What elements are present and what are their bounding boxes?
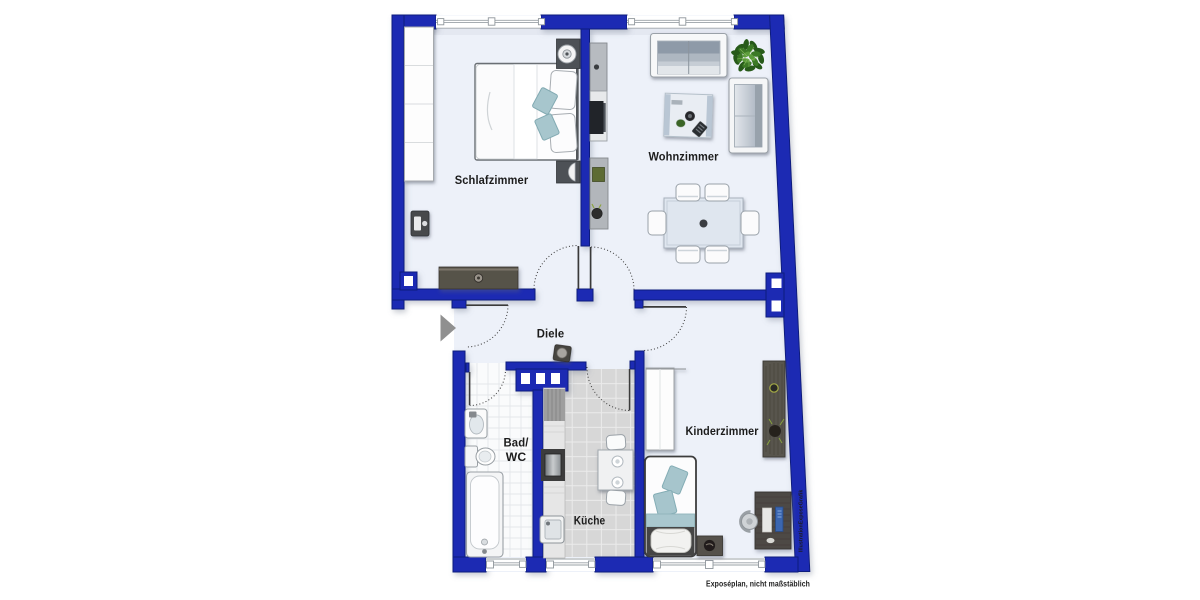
svg-text:Küche: Küche bbox=[574, 515, 606, 527]
svg-text:Bad/: Bad/ bbox=[504, 438, 530, 450]
svg-text:WC: WC bbox=[506, 452, 527, 464]
svg-text:IllustrationExposeGrafik: IllustrationExposeGrafik bbox=[799, 490, 805, 552]
svg-text:Schlafzimmer: Schlafzimmer bbox=[455, 175, 529, 187]
svg-text:Wohnzimmer: Wohnzimmer bbox=[649, 152, 719, 164]
svg-text:Kinderzimmer: Kinderzimmer bbox=[686, 426, 759, 438]
svg-text:Diele: Diele bbox=[537, 328, 565, 340]
svg-text:Exposéplan, nicht maßstäblich: Exposéplan, nicht maßstäblich bbox=[706, 579, 810, 589]
